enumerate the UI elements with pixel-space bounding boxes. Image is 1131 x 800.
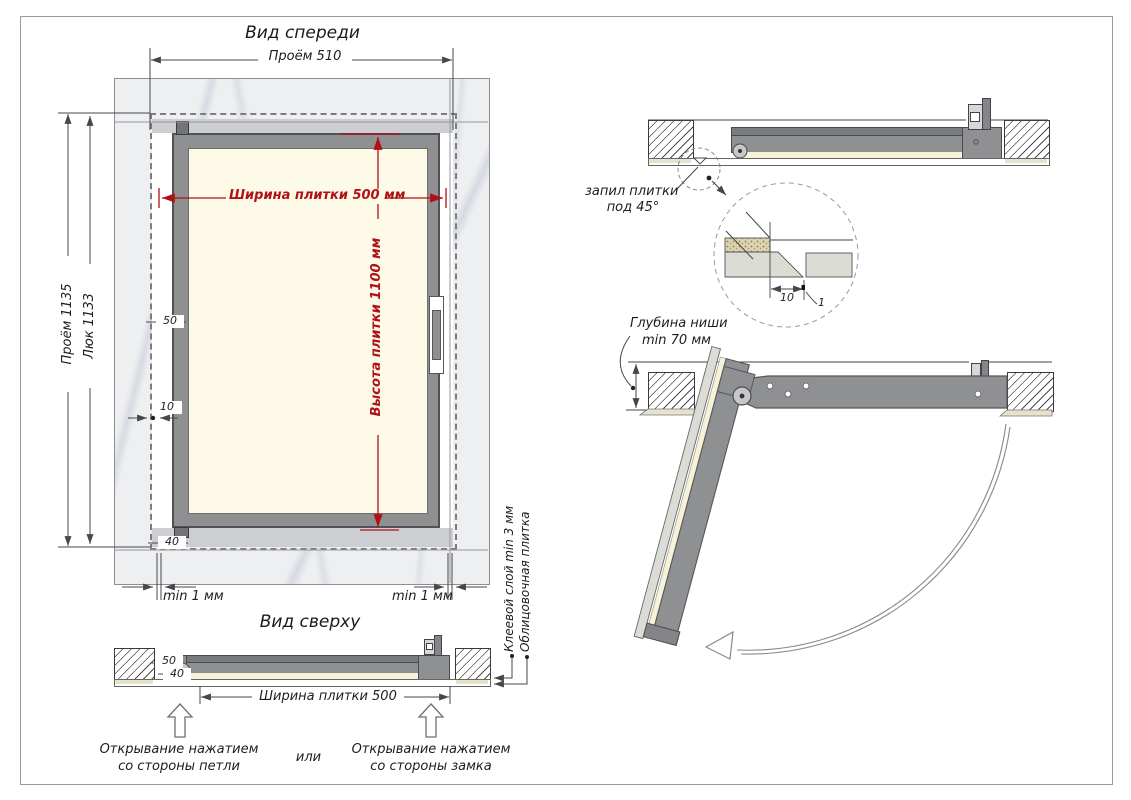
open-hinge-note-1: Открывание нажатием bbox=[98, 743, 260, 758]
dim-40-front: 40 bbox=[158, 536, 186, 549]
front-view-title: Вид спереди bbox=[220, 24, 385, 44]
layer-label-leaders bbox=[494, 657, 527, 684]
dim-opening-height: Проём 1135 bbox=[61, 256, 75, 392]
cut-detail-small-circle bbox=[678, 148, 720, 190]
open-lock-note-1: Открывание нажатием bbox=[349, 743, 513, 758]
label-facing-tile: Облицовочная плитка bbox=[519, 507, 533, 652]
dim-hatch-height: Люк 1133 bbox=[83, 264, 97, 388]
dim-tile-height: Высота плитки 1100 мм bbox=[370, 219, 385, 435]
open-hatch-arm bbox=[734, 376, 1007, 408]
niche-depth-label-2: min 70 мм bbox=[642, 334, 711, 349]
tile-cut-detail bbox=[714, 183, 858, 327]
niche-depth-label-1: Глубина ниши bbox=[630, 317, 728, 332]
dim-40-top: 40 bbox=[163, 668, 191, 681]
tile-cut-label-2: под 45° bbox=[600, 201, 666, 216]
or-word: или bbox=[286, 751, 331, 766]
tile-cut-notch bbox=[694, 158, 706, 164]
top-view-title: Вид сверху bbox=[240, 613, 380, 633]
tile-cut-label-1: запил плитки bbox=[585, 185, 677, 200]
open-lock-note-2: со стороны замка bbox=[349, 760, 513, 775]
dim-50-front: 50 bbox=[156, 315, 184, 328]
dim-tile-width: Ширина плитки 500 мм bbox=[226, 189, 386, 204]
label-adhesive-layer: Клеевой слой min 3 мм bbox=[503, 504, 517, 652]
dim-50-top: 50 bbox=[155, 655, 183, 668]
detail-dim-1: 1 bbox=[818, 297, 825, 310]
detail-dim-10: 10 bbox=[774, 292, 800, 305]
dim-10-front: 10 bbox=[152, 401, 182, 414]
drawing-canvas: Вид спереди Проём 510 Ширина плитки 500 … bbox=[0, 0, 1131, 800]
press-open-arrows bbox=[168, 704, 443, 737]
dim-min-gap-left: min 1 мм bbox=[163, 590, 224, 605]
front-wall-joints bbox=[114, 78, 488, 583]
swing-arrowhead bbox=[706, 632, 733, 659]
door-swing-arc bbox=[737, 424, 1010, 654]
dim-opening-width: Проём 510 bbox=[258, 50, 352, 65]
dim-min-gap-right: min 1 мм bbox=[392, 590, 453, 605]
dim-tile-width-top: Ширина плитки 500 bbox=[252, 690, 404, 705]
front-dimensions bbox=[58, 48, 487, 600]
open-hinge-note-2: со стороны петли bbox=[98, 760, 260, 775]
